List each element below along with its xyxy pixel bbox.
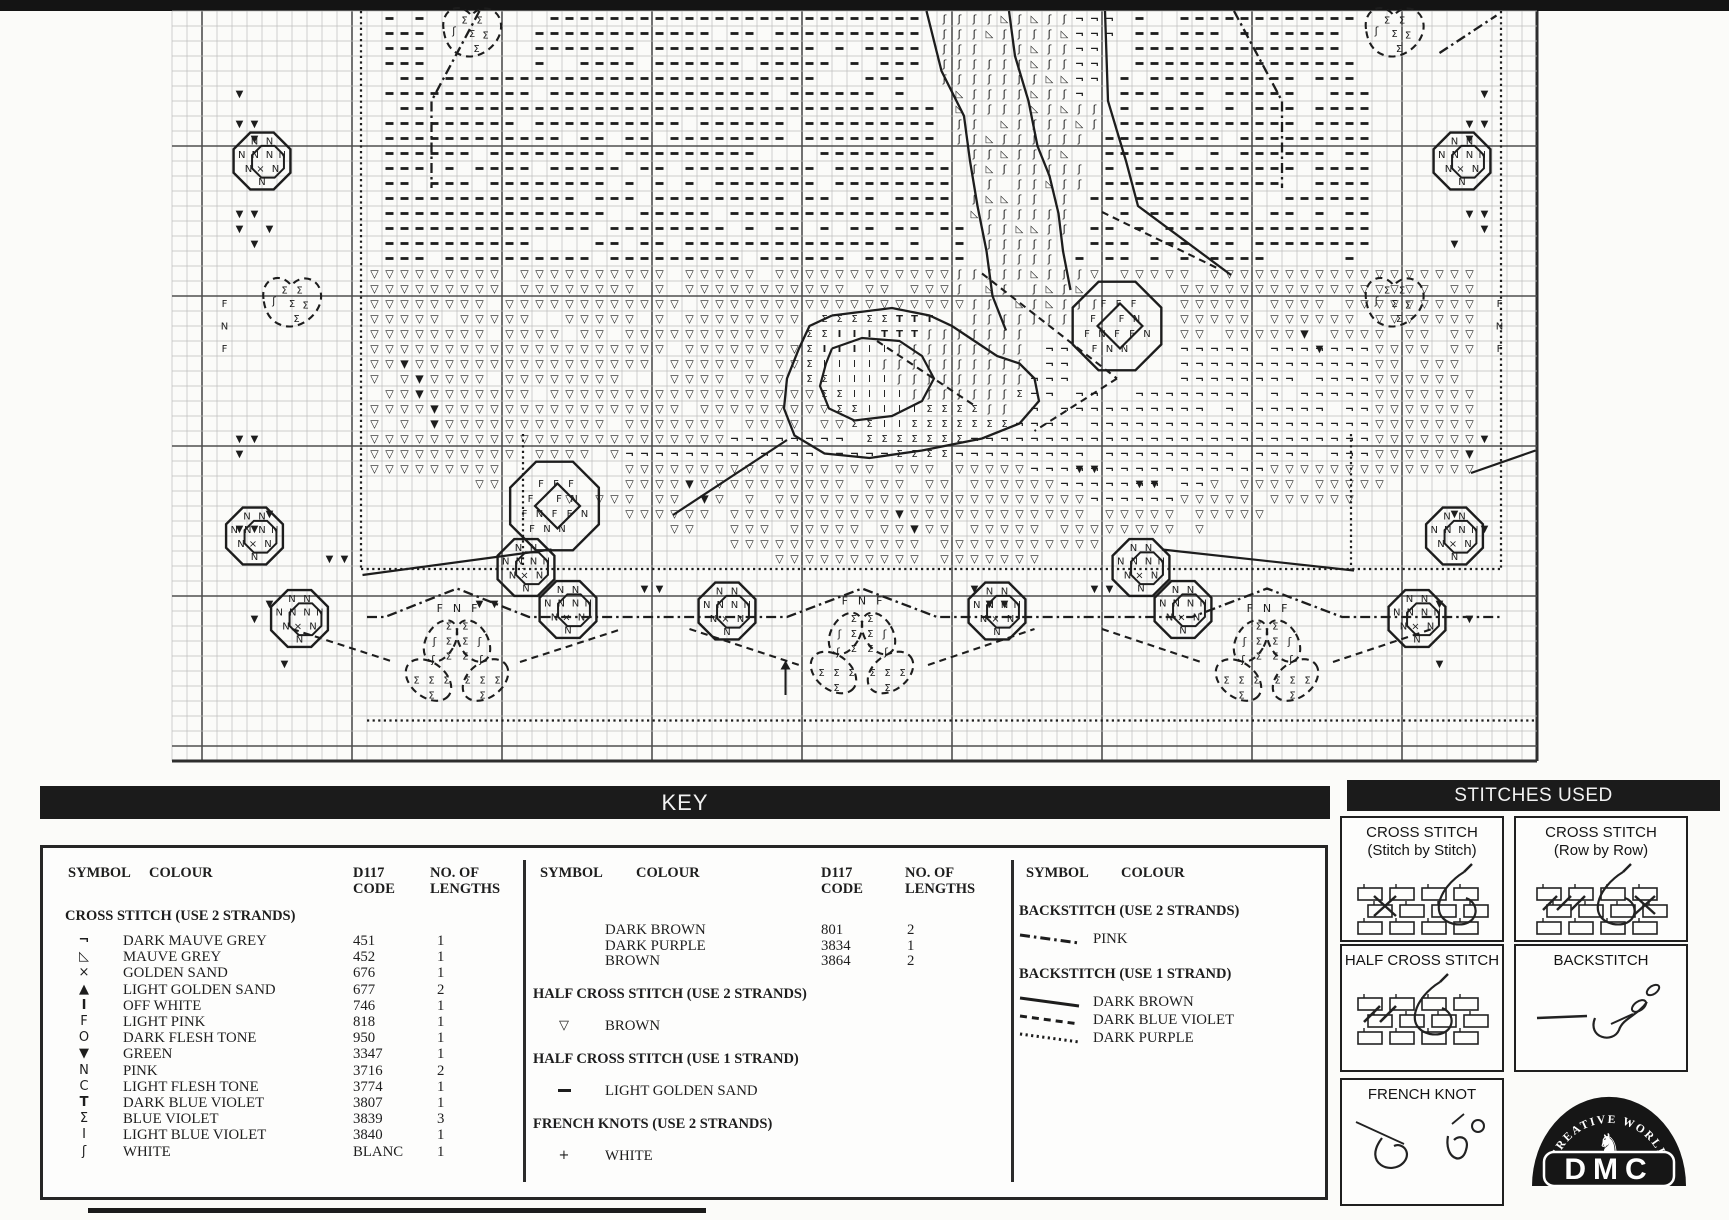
svg-text:▽: ▽ <box>475 357 484 370</box>
svg-text:▽: ▽ <box>685 357 694 370</box>
svg-text:▽: ▽ <box>685 387 694 400</box>
svg-text:▽: ▽ <box>700 342 709 355</box>
svg-text:▽: ▽ <box>775 372 784 385</box>
svg-text:I: I <box>868 389 871 400</box>
svg-text:ʃ: ʃ <box>1077 102 1082 115</box>
svg-text:▽: ▽ <box>490 357 499 370</box>
svg-text:▽: ▽ <box>1225 297 1234 310</box>
svg-text:▽: ▽ <box>1420 267 1429 280</box>
svg-text:▽: ▽ <box>1375 327 1384 340</box>
svg-text:N: N <box>1098 329 1105 340</box>
svg-text:▽: ▽ <box>775 462 784 475</box>
svg-text:¬: ¬ <box>1285 447 1294 460</box>
svg-text:ʃ: ʃ <box>1002 252 1007 265</box>
svg-text:▽: ▽ <box>1030 492 1039 505</box>
svg-text:¬: ¬ <box>1045 462 1054 475</box>
svg-text:▽: ▽ <box>775 402 784 415</box>
svg-text:▽: ▽ <box>685 372 694 385</box>
svg-text:¬: ¬ <box>775 447 784 460</box>
svg-text:Σ: Σ <box>1223 676 1229 687</box>
svg-text:ʃ: ʃ <box>1002 222 1007 235</box>
svg-text:ʃ: ʃ <box>1017 27 1022 40</box>
svg-text:¬: ¬ <box>1060 372 1069 385</box>
svg-text:▽: ▽ <box>1255 477 1264 490</box>
svg-text:N: N <box>1458 525 1465 536</box>
svg-text:▽: ▽ <box>1180 297 1189 310</box>
svg-text:ʃ: ʃ <box>987 237 992 250</box>
svg-text:Σ: Σ <box>1238 676 1244 687</box>
svg-text:N: N <box>1172 585 1179 596</box>
svg-text:▽: ▽ <box>610 297 619 310</box>
svg-text:▽: ▽ <box>790 267 799 280</box>
svg-text:¬: ¬ <box>1210 342 1219 355</box>
svg-text:▽: ▽ <box>670 522 679 535</box>
svg-text:▽: ▽ <box>550 297 559 310</box>
svg-text:I: I <box>853 374 856 385</box>
key-row-code: 3347 <box>353 1046 383 1063</box>
svg-text:¬: ¬ <box>1075 57 1084 70</box>
svg-text:▽: ▽ <box>805 297 814 310</box>
svg-text:¬: ¬ <box>1270 357 1279 370</box>
svg-text:×: × <box>256 164 264 175</box>
svg-text:▽: ▽ <box>835 282 844 295</box>
svg-text:▽: ▽ <box>940 477 949 490</box>
svg-text:¬: ¬ <box>1360 432 1369 445</box>
svg-text:▽: ▽ <box>1330 267 1339 280</box>
svg-text:Σ: Σ <box>851 644 857 655</box>
svg-text:▽: ▽ <box>655 492 664 505</box>
svg-text:▽: ▽ <box>505 327 514 340</box>
svg-text:▽: ▽ <box>880 492 889 505</box>
svg-text:ʃ: ʃ <box>1062 132 1067 145</box>
svg-text:▽: ▽ <box>400 327 409 340</box>
svg-text:▽: ▽ <box>400 267 409 280</box>
key-row: BROWN38642 <box>43 953 1003 969</box>
svg-text:▽: ▽ <box>940 267 949 280</box>
svg-text:▽: ▽ <box>475 477 484 490</box>
svg-text:▽: ▽ <box>385 282 394 295</box>
svg-text:▽: ▽ <box>385 327 394 340</box>
svg-text:¬: ¬ <box>1285 372 1294 385</box>
svg-text:Σ: Σ <box>1391 29 1397 40</box>
svg-text:▼: ▼ <box>326 554 334 565</box>
svg-text:▽: ▽ <box>700 462 709 475</box>
svg-text:▽: ▽ <box>370 417 379 430</box>
svg-text:F: F <box>1090 314 1096 325</box>
svg-text:Σ: Σ <box>1289 676 1295 687</box>
svg-text:ʃ: ʃ <box>1002 387 1007 400</box>
svg-text:▽: ▽ <box>775 327 784 340</box>
svg-text:▼: ▼ <box>1436 659 1444 670</box>
key-row-symbol: Σ <box>69 1111 99 1126</box>
svg-text:▽: ▽ <box>460 417 469 430</box>
svg-text:¬: ¬ <box>1105 402 1114 415</box>
svg-text:▽: ▽ <box>685 462 694 475</box>
svg-text:▽: ▽ <box>745 327 754 340</box>
svg-text:¬: ¬ <box>1180 402 1189 415</box>
svg-text:ʃ: ʃ <box>1287 635 1292 648</box>
svg-text:▽: ▽ <box>895 522 904 535</box>
svg-text:▽: ▽ <box>955 507 964 520</box>
svg-text:▽: ▽ <box>370 282 379 295</box>
svg-text:▽: ▽ <box>580 387 589 400</box>
svg-text:▽: ▽ <box>1360 462 1369 475</box>
svg-text:▽: ▽ <box>1225 327 1234 340</box>
svg-text:▽: ▽ <box>1270 312 1279 325</box>
svg-text:▽: ▽ <box>610 312 619 325</box>
svg-text:ʃ: ʃ <box>1017 42 1022 55</box>
svg-text:ʃ: ʃ <box>1062 117 1067 130</box>
key-header-colour: COLOUR <box>1121 865 1185 881</box>
svg-text:N: N <box>1121 344 1128 355</box>
svg-text:▽: ▽ <box>700 387 709 400</box>
key-row-code: 3840 <box>353 1127 383 1144</box>
svg-text:▽: ▽ <box>505 387 514 400</box>
svg-text:N: N <box>309 622 316 633</box>
svg-text:▽: ▽ <box>775 477 784 490</box>
svg-text:¬: ¬ <box>1015 447 1024 460</box>
svg-text:▽: ▽ <box>400 312 409 325</box>
svg-text:▽: ▽ <box>580 432 589 445</box>
svg-text:▽: ▽ <box>775 417 784 430</box>
svg-text:▽: ▽ <box>1195 507 1204 520</box>
key-row-lengths: 2 <box>907 953 914 970</box>
svg-text:▽: ▽ <box>715 492 724 505</box>
svg-text:▽: ▽ <box>1450 372 1459 385</box>
svg-text:N: N <box>303 607 310 618</box>
svg-text:▽: ▽ <box>775 357 784 370</box>
svg-text:¬: ¬ <box>1225 402 1234 415</box>
svg-text:ʃ: ʃ <box>1288 653 1293 666</box>
svg-text:▽: ▽ <box>715 417 724 430</box>
svg-text:F: F <box>1281 602 1287 615</box>
svg-text:N: N <box>543 524 550 535</box>
svg-text:▼: ▼ <box>251 119 259 130</box>
svg-text:▽: ▽ <box>1315 477 1324 490</box>
svg-text:¬: ¬ <box>1060 357 1069 370</box>
svg-text:▽: ▽ <box>535 357 544 370</box>
svg-text:▽: ▽ <box>430 432 439 445</box>
svg-text:¬: ¬ <box>1105 492 1114 505</box>
svg-text:▽: ▽ <box>670 477 679 490</box>
key-row: ΣBLUE VIOLET38393 <box>43 1111 513 1127</box>
svg-text:ʃ: ʃ <box>477 635 482 648</box>
svg-text:¬: ¬ <box>1120 492 1129 505</box>
svg-text:▽: ▽ <box>1015 462 1024 475</box>
svg-text:▼: ▼ <box>1091 464 1099 475</box>
svg-text:N: N <box>515 543 522 554</box>
svg-text:ʃ: ʃ <box>972 267 977 280</box>
svg-text:▽: ▽ <box>835 462 844 475</box>
svg-text:▽: ▽ <box>700 417 709 430</box>
svg-text:▽: ▽ <box>520 432 529 445</box>
svg-text:N: N <box>1458 177 1465 188</box>
svg-text:▽: ▽ <box>835 267 844 280</box>
svg-text:ʃ: ʃ <box>972 42 977 55</box>
svg-text:▽: ▽ <box>1300 282 1309 295</box>
svg-text:▽: ▽ <box>655 417 664 430</box>
svg-text:▽: ▽ <box>625 432 634 445</box>
svg-text:▽: ▽ <box>745 417 754 430</box>
svg-text:ʃ: ʃ <box>1032 297 1037 310</box>
key-header-code: D117 CODE <box>353 865 395 897</box>
svg-text:▽: ▽ <box>745 342 754 355</box>
key-row-code: 3864 <box>821 953 851 970</box>
key-row-code: 746 <box>353 998 375 1015</box>
svg-text:N: N <box>572 585 579 596</box>
svg-text:ʃ: ʃ <box>1032 177 1037 190</box>
svg-text:N: N <box>731 586 738 597</box>
svg-text:ʃ: ʃ <box>1062 162 1067 175</box>
svg-text:▽: ▽ <box>745 387 754 400</box>
svg-text:▼: ▼ <box>236 209 244 220</box>
svg-text:▽: ▽ <box>700 372 709 385</box>
svg-text:Σ: Σ <box>1384 16 1390 27</box>
svg-text:▽: ▽ <box>580 312 589 325</box>
key-header-colour: COLOUR <box>149 865 213 881</box>
svg-text:▽: ▽ <box>1270 327 1279 340</box>
key-row: IOFF WHITE7461 <box>43 998 513 1014</box>
svg-text:N: N <box>581 509 588 520</box>
svg-text:ʃ: ʃ <box>1047 237 1052 250</box>
svg-text:Σ: Σ <box>881 314 887 325</box>
svg-text:▽: ▽ <box>1435 417 1444 430</box>
svg-text:▽: ▽ <box>1375 432 1384 445</box>
svg-text:▽: ▽ <box>1210 312 1219 325</box>
svg-text:ʃ: ʃ <box>432 635 437 648</box>
svg-text:◺: ◺ <box>1076 284 1084 295</box>
key-row-colour: GREEN <box>123 1046 172 1063</box>
svg-text:ʃ: ʃ <box>1077 132 1082 145</box>
svg-text:Σ: Σ <box>446 637 452 648</box>
svg-text:▽: ▽ <box>745 507 754 520</box>
svg-text:▽: ▽ <box>910 507 919 520</box>
svg-text:N: N <box>1131 556 1138 567</box>
svg-text:N: N <box>731 600 738 611</box>
key-row-code: 3839 <box>353 1111 383 1128</box>
svg-text:◺: ◺ <box>1031 59 1039 70</box>
svg-text:ʃ: ʃ <box>1002 42 1007 55</box>
svg-text:▽: ▽ <box>1405 417 1414 430</box>
svg-text:▽: ▽ <box>970 537 979 550</box>
svg-text:▽: ▽ <box>550 432 559 445</box>
key-header-colour: COLOUR <box>636 865 700 881</box>
svg-text:▽: ▽ <box>760 342 769 355</box>
svg-text:¬: ¬ <box>1330 357 1339 370</box>
svg-text:▽: ▽ <box>1015 522 1024 535</box>
svg-text:¬: ¬ <box>1285 417 1294 430</box>
svg-text:▽: ▽ <box>370 267 379 280</box>
svg-text:▽: ▽ <box>550 357 559 370</box>
svg-text:▽: ▽ <box>1315 297 1324 310</box>
svg-text:¬: ¬ <box>1210 432 1219 445</box>
svg-text:▽: ▽ <box>880 537 889 550</box>
svg-text:▽: ▽ <box>1150 267 1159 280</box>
svg-text:▽: ▽ <box>685 267 694 280</box>
svg-text:¬: ¬ <box>1090 42 1099 55</box>
svg-text:▽: ▽ <box>700 507 709 520</box>
svg-text:ʃ: ʃ <box>1374 294 1379 307</box>
key-section-title: FRENCH KNOTS (USE 2 STRANDS) <box>533 1116 772 1133</box>
stitch-box-cross-stitch: CROSS STITCH(Stitch by Stitch) <box>1340 816 1504 942</box>
svg-text:¬: ¬ <box>1165 492 1174 505</box>
svg-text:▽: ▽ <box>730 477 739 490</box>
svg-text:Σ: Σ <box>899 668 905 679</box>
key-row-symbol: ▼ <box>69 1046 99 1061</box>
svg-text:¬: ¬ <box>1195 477 1204 490</box>
svg-text:▽: ▽ <box>1075 507 1084 520</box>
svg-text:ʃ: ʃ <box>1047 222 1052 235</box>
svg-text:N: N <box>1471 525 1478 536</box>
svg-text:ʃ: ʃ <box>883 645 888 658</box>
svg-text:▽: ▽ <box>1285 267 1294 280</box>
svg-text:▽: ▽ <box>655 327 664 340</box>
svg-text:▽: ▽ <box>1345 297 1354 310</box>
svg-text:▽: ▽ <box>865 462 874 475</box>
stitch-box-label: CROSS STITCH <box>1342 824 1502 842</box>
svg-text:▽: ▽ <box>595 432 604 445</box>
svg-text:▽: ▽ <box>685 522 694 535</box>
svg-text:ʃ: ʃ <box>1062 177 1067 190</box>
svg-text:ʃ: ʃ <box>972 117 977 130</box>
svg-text:N: N <box>744 600 751 611</box>
svg-text:▽: ▽ <box>925 492 934 505</box>
svg-text:ʃ: ʃ <box>1002 72 1007 85</box>
svg-text:▽: ▽ <box>805 462 814 475</box>
svg-text:¬: ¬ <box>1195 432 1204 445</box>
cross-stitch-chart: ʃʃʃʃʃʃʃʃʃʃʃʃʃʃʃʃʃʃʃʃʃʃʃʃʃʃʃʃʃʃʃʃʃʃʃʃʃʃʃʃ… <box>0 0 1729 782</box>
svg-text:Σ: Σ <box>851 629 857 640</box>
svg-text:ʃ: ʃ <box>1077 267 1082 280</box>
stitch-box-sublabel: (Stitch by Stitch) <box>1342 842 1502 860</box>
svg-text:▽: ▽ <box>1330 477 1339 490</box>
svg-text:▽: ▽ <box>670 402 679 415</box>
svg-text:▽: ▽ <box>1090 522 1099 535</box>
svg-text:▽: ▽ <box>1450 312 1459 325</box>
svg-text:ʃ: ʃ <box>987 222 992 235</box>
svg-text:▽: ▽ <box>865 267 874 280</box>
svg-text:▽: ▽ <box>1285 282 1294 295</box>
svg-text:¬: ¬ <box>1300 432 1309 445</box>
svg-text:▽: ▽ <box>475 402 484 415</box>
svg-text:N: N <box>1421 594 1428 605</box>
svg-text:▽: ▽ <box>490 402 499 415</box>
svg-text:▽: ▽ <box>850 462 859 475</box>
svg-text:▽: ▽ <box>790 537 799 550</box>
svg-text:▽: ▽ <box>655 432 664 445</box>
svg-text:▽: ▽ <box>835 522 844 535</box>
svg-text:¬: ¬ <box>1360 447 1369 460</box>
svg-text:▽: ▽ <box>1420 282 1429 295</box>
svg-text:¬: ¬ <box>1225 372 1234 385</box>
svg-text:▽: ▽ <box>490 267 499 280</box>
stitch-box-label: HALF CROSS STITCH <box>1342 952 1502 970</box>
svg-text:▽: ▽ <box>1195 312 1204 325</box>
svg-text:▽: ▽ <box>370 432 379 445</box>
svg-text:¬: ¬ <box>1330 447 1339 460</box>
svg-text:ʃ: ʃ <box>430 653 435 666</box>
svg-text:▽: ▽ <box>1105 507 1114 520</box>
svg-text:▽: ▽ <box>1210 492 1219 505</box>
svg-text:▽: ▽ <box>460 297 469 310</box>
svg-text:▽: ▽ <box>1315 312 1324 325</box>
svg-text:N: N <box>1496 322 1503 333</box>
svg-text:▽: ▽ <box>385 267 394 280</box>
svg-text:¬: ¬ <box>1045 447 1054 460</box>
svg-text:N: N <box>1001 600 1008 611</box>
svg-text:¬: ¬ <box>1345 387 1354 400</box>
svg-text:F: F <box>842 594 848 607</box>
svg-text:¬: ¬ <box>1120 447 1129 460</box>
svg-text:▽: ▽ <box>370 342 379 355</box>
svg-text:▽: ▽ <box>550 282 559 295</box>
svg-text:Σ: Σ <box>851 614 857 625</box>
svg-text:▽: ▽ <box>625 342 634 355</box>
svg-text:¬: ¬ <box>1240 417 1249 430</box>
svg-text:ʃ: ʃ <box>972 297 977 310</box>
svg-text:▽: ▽ <box>820 507 829 520</box>
svg-text:×: × <box>249 539 257 550</box>
key-row-code: 677 <box>353 982 375 999</box>
svg-text:¬: ¬ <box>1345 357 1354 370</box>
svg-text:▼: ▼ <box>431 404 439 415</box>
svg-text:▽: ▽ <box>685 282 694 295</box>
svg-text:▽: ▽ <box>895 552 904 565</box>
svg-text:▽: ▽ <box>490 447 499 460</box>
key-row-lengths: 3 <box>437 1111 444 1128</box>
svg-text:ʃ: ʃ <box>957 72 962 85</box>
svg-text:▽: ▽ <box>445 357 454 370</box>
svg-text:▽: ▽ <box>490 417 499 430</box>
svg-text:▽: ▽ <box>1090 267 1099 280</box>
key-header-symbol: SYMBOL <box>1026 865 1089 881</box>
svg-text:▽: ▽ <box>1375 462 1384 475</box>
svg-text:▽: ▽ <box>1435 357 1444 370</box>
svg-text:▽: ▽ <box>970 477 979 490</box>
svg-text:▽: ▽ <box>790 507 799 520</box>
svg-text:F: F <box>1131 299 1137 310</box>
svg-text:ʃ: ʃ <box>972 102 977 115</box>
svg-text:Σ: Σ <box>1256 622 1262 633</box>
svg-text:¬: ¬ <box>1135 402 1144 415</box>
svg-text:N: N <box>258 177 265 188</box>
svg-text:▽: ▽ <box>1165 507 1174 520</box>
svg-text:▽: ▽ <box>1375 372 1384 385</box>
svg-text:ʃ: ʃ <box>837 627 842 640</box>
svg-text:¬: ¬ <box>1180 342 1189 355</box>
svg-text:▽: ▽ <box>1240 282 1249 295</box>
svg-text:N: N <box>558 598 565 609</box>
svg-text:¬: ¬ <box>1210 357 1219 370</box>
svg-text:▽: ▽ <box>1015 507 1024 520</box>
svg-text:▽: ▽ <box>565 282 574 295</box>
svg-text:▽: ▽ <box>895 492 904 505</box>
key-row-colour: LIGHT GOLDEN SAND <box>605 1083 758 1100</box>
svg-text:Σ: Σ <box>867 644 873 655</box>
svg-text:▽: ▽ <box>625 297 634 310</box>
svg-text:¬: ¬ <box>760 432 769 445</box>
svg-text:ʃ: ʃ <box>271 294 276 307</box>
svg-text:¬: ¬ <box>1300 387 1309 400</box>
svg-text:¬: ¬ <box>745 447 754 460</box>
svg-text:▽: ▽ <box>640 342 649 355</box>
svg-text:I: I <box>883 404 886 415</box>
svg-text:▽: ▽ <box>1315 267 1324 280</box>
svg-text:Σ: Σ <box>941 419 947 430</box>
svg-text:▽: ▽ <box>1360 477 1369 490</box>
svg-text:N: N <box>1452 150 1459 161</box>
svg-text:ʃ: ʃ <box>1047 207 1052 220</box>
